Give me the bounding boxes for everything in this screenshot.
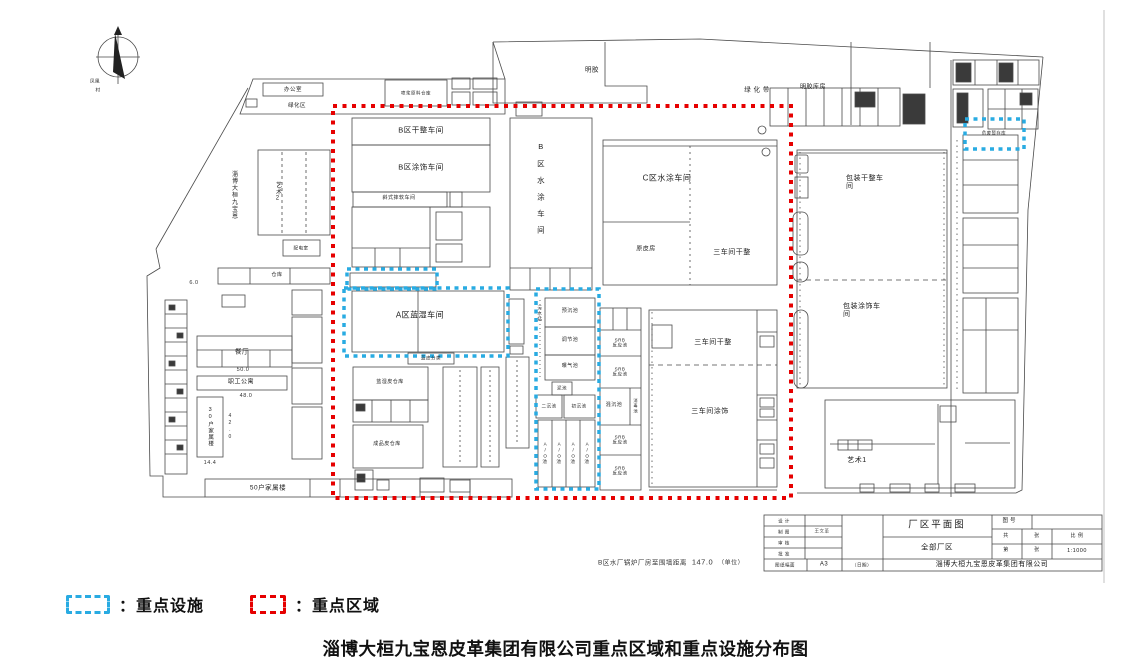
label-hazwaste-store: 危废暂存库	[982, 132, 1006, 137]
dim-14-4: 14.4	[204, 460, 217, 466]
label-art2-building: 艺术2	[274, 182, 281, 203]
distance-note-text: B区水厂锅炉厂房至围墙距离	[598, 560, 687, 567]
dim-6-0: 6.0	[189, 280, 198, 286]
label-gelatin-store: 明胶库房	[800, 85, 826, 92]
tb-scale-label: 比 例	[1071, 534, 1084, 540]
legend-facility-label: 重点设施	[136, 598, 204, 615]
label-pool-sludge: 泥池	[557, 385, 567, 390]
label-pool-regulating: 调节池	[562, 338, 579, 344]
tb-drawing-name: 厂区平面图	[908, 521, 966, 532]
label-green-zone: 绿化区	[288, 103, 306, 109]
tb-sheet-label: 张	[1034, 534, 1040, 540]
label-srb-pool-2: SRB反应池	[613, 367, 628, 376]
tb-design: 设 计	[778, 518, 790, 523]
dim-42-0: 42.0	[226, 413, 232, 441]
label-pool-presediment: 预沉池	[562, 309, 579, 315]
tb-check: 审 核	[778, 540, 790, 545]
label-srb-pool-4: SRB反应池	[613, 466, 628, 475]
tb-scope: 全部厂区	[921, 544, 953, 553]
key-facility-outline-1	[347, 269, 437, 289]
label-pack-coating-workshop: 包装涂饰车间	[843, 303, 885, 319]
tb-index-label: 第	[1003, 548, 1009, 554]
label-family-50: 50户家属楼	[250, 484, 286, 491]
tb-size-label: 图纸幅面	[775, 562, 795, 567]
label-power-room: 配电室	[294, 245, 309, 250]
site-plan-geometry	[0, 0, 1131, 671]
tb-no-label: 图号	[1002, 518, 1017, 524]
label-pool-ao-1: A/O池	[542, 441, 547, 465]
label-pool-secondary: 二沉池	[542, 403, 557, 408]
tb-size-value: A3	[820, 562, 828, 569]
label-spray-store: 喷浆原料仓库	[401, 90, 431, 95]
label-pack-dry-workshop: 包装干整车间	[846, 175, 888, 191]
label-pool-disinfect: 消毒池	[633, 398, 638, 414]
srb-line2: 反应池	[613, 343, 628, 348]
srb-line2: 反应池	[613, 440, 628, 445]
label-village-2: 村	[96, 87, 101, 92]
tb-date-label: （日期）	[852, 562, 872, 567]
label-village-1: 凤凰	[90, 78, 100, 83]
label-road-name: 淄博大桓九宝恩	[230, 171, 237, 220]
compass-icon	[96, 26, 140, 84]
label-pool-mixsed: 混沉池	[606, 403, 623, 409]
tb-total-label: 共	[1003, 534, 1009, 540]
label-pool-primary: 初沉池	[572, 403, 587, 408]
legend-area-text: ：重点区域	[295, 592, 380, 616]
legend-area-label: 重点区域	[312, 598, 380, 615]
distance-note-unit: （单位）	[718, 561, 744, 568]
label-ws3-dry: 三车间干整	[694, 339, 732, 347]
label-b-coating-workshop: B区涂饰车间	[398, 164, 444, 173]
legend-sep: ：	[295, 598, 312, 615]
label-storehouse: 仓库	[271, 273, 282, 279]
label-pool-ao-3: A/O池	[570, 441, 575, 465]
key-area-swatch-icon	[250, 595, 286, 614]
tb-draft: 制 图	[778, 529, 790, 534]
label-pool-ao-4: A/O池	[584, 441, 589, 465]
label-family-30: 30户家属楼	[207, 407, 213, 447]
legend-key-area: ：重点区域	[250, 592, 380, 616]
label-wetblue-store: 蓝湿皮仓库	[376, 380, 404, 386]
legend-facility-text: ：重点设施	[119, 592, 204, 616]
label-pool-aeration: 曝气池	[562, 364, 579, 370]
tb-scale-value: 1:1000	[1067, 548, 1087, 554]
label-blue-sort: 蓝皮分类	[421, 355, 441, 360]
tb-approve: 批 准	[778, 551, 790, 556]
label-canteen: 餐厅	[235, 348, 249, 355]
label-ws3-dry-in-c: 三车间干整	[713, 249, 751, 257]
key-facility-outline-2	[344, 288, 508, 356]
label-a-wetblue-workshop: A区蓝湿车间	[396, 310, 444, 319]
distance-note-value: 147.0	[692, 559, 713, 568]
label-staff-apartment: 职工公寓	[228, 380, 254, 387]
srb-line2: 反应池	[613, 471, 628, 476]
label-office: 办公室	[284, 87, 302, 93]
label-ws3-coating: 三车间涂饰	[691, 408, 729, 416]
label-green-belt: 绿 化 带	[744, 86, 770, 93]
factory-site-plan-screenshot: 凤凰 村 办公室 绿化区 淄博大桓九宝恩 艺术2 配电室 仓库 6.0 餐厅 5…	[0, 0, 1131, 671]
tb-company: 淄博大桓九宝恩皮革集团有限公司	[936, 561, 1049, 569]
tb-sheet-label2: 张	[1034, 548, 1040, 554]
dim-48-0: 48.0	[240, 393, 253, 399]
key-facility-swatch-icon	[66, 595, 110, 614]
label-srb-pool-1: SRB反应池	[613, 338, 628, 347]
dim-50-0: 50.0	[237, 367, 250, 373]
page-title: 淄博大桓九宝恩皮革集团有限公司重点区域和重点设施分布图	[0, 636, 1131, 661]
distance-note: B区水厂锅炉厂房至围墙距离 147.0 （单位）	[598, 559, 744, 568]
srb-line2: 反应池	[613, 372, 628, 377]
label-srb-pool-3: SRB反应池	[613, 435, 628, 444]
legend-sep: ：	[119, 598, 136, 615]
label-finished-store: 成品皮仓库	[373, 442, 401, 448]
label-b-dry-workshop: B区干整车间	[398, 127, 444, 136]
tb-draft-name: 王文革	[815, 528, 830, 533]
label-gelatin: 明胶	[585, 66, 599, 73]
label-art1-building: 艺术1	[847, 457, 866, 465]
label-b-water-workshop: B区水涂车间	[536, 142, 545, 243]
label-c-water-workshop: C区水涂车间	[643, 173, 692, 182]
label-rawhide-room: 原皮房	[636, 247, 656, 254]
label-milling-workshop: 斜式摔软车间	[382, 196, 415, 202]
label-sewage-station: 污水站	[537, 306, 542, 323]
legend-key-facility: ：重点设施	[66, 592, 204, 616]
label-pool-ao-2: A/O池	[556, 441, 561, 465]
